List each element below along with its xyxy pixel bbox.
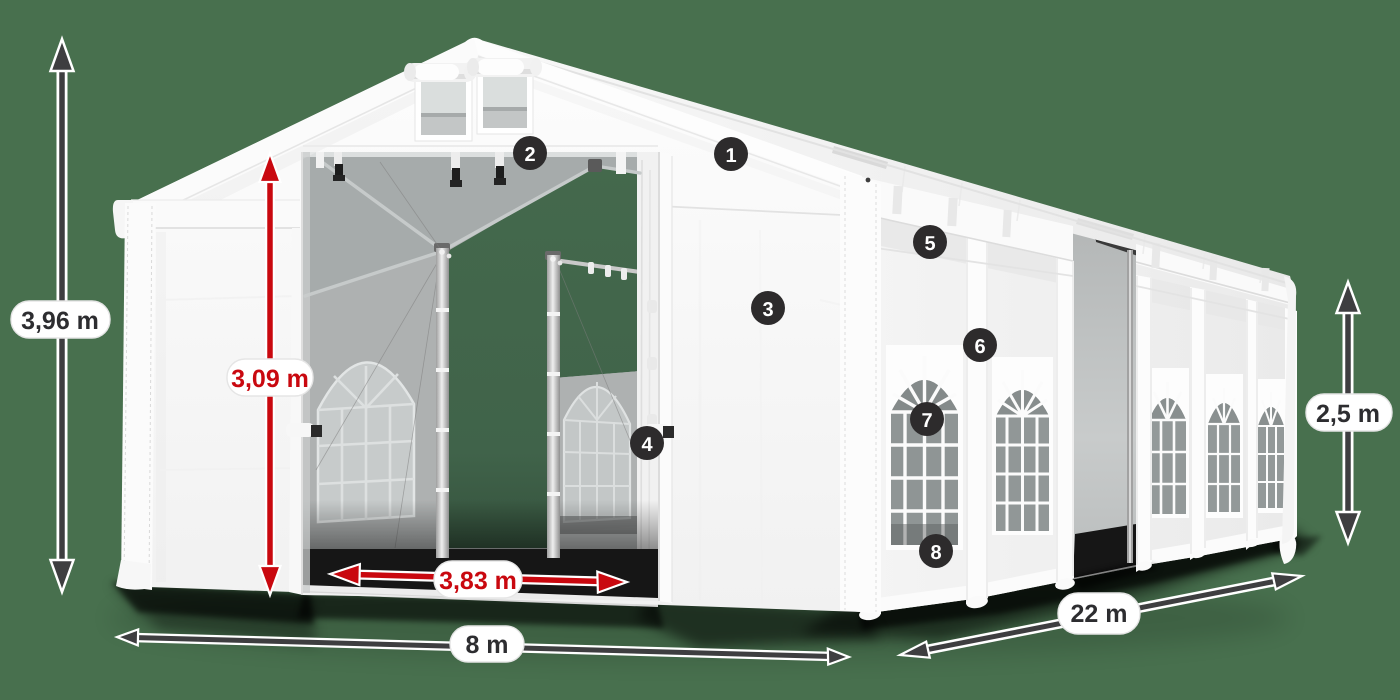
svg-text:3,96 m: 3,96 m [21, 307, 99, 335]
svg-text:1: 1 [725, 145, 736, 167]
svg-text:3: 3 [762, 299, 773, 321]
svg-text:8 m: 8 m [465, 631, 508, 659]
svg-text:2: 2 [524, 144, 535, 166]
svg-text:7: 7 [921, 410, 932, 432]
svg-text:6: 6 [974, 336, 985, 358]
svg-text:22 m: 22 m [1071, 600, 1128, 628]
svg-text:4: 4 [641, 434, 653, 456]
svg-text:3,09 m: 3,09 m [231, 365, 309, 393]
svg-text:5: 5 [924, 233, 935, 255]
svg-text:8: 8 [930, 542, 941, 564]
svg-text:3,83 m: 3,83 m [439, 567, 517, 595]
svg-text:2,5 m: 2,5 m [1316, 400, 1380, 428]
